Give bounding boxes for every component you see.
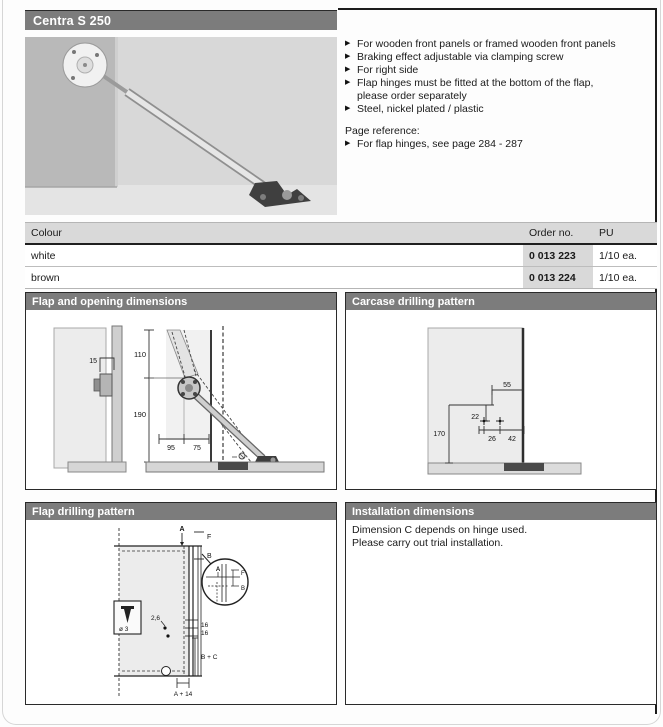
- dim-110: 110: [134, 350, 146, 359]
- dim-16-b: 16: [201, 630, 209, 637]
- product-title: Centra S 250: [25, 14, 111, 28]
- dim-22: 22: [471, 414, 479, 421]
- table-row: brown 0 013 224 1/10 ea.: [25, 267, 657, 288]
- bullet-icon: ▶: [345, 103, 357, 116]
- panel-carcase-drilling-pattern: Carcase drilling pattern 55 22: [345, 292, 657, 490]
- dim-75: 75: [193, 445, 201, 452]
- bullet-icon: ▶: [345, 77, 357, 102]
- feature-text: Steel, nickel plated / plastic: [357, 103, 484, 116]
- cell-order-no: 0 013 223: [523, 245, 593, 266]
- hinge-mechanism: [178, 377, 200, 399]
- dim-15: 15: [89, 358, 97, 365]
- cell-order-no: 0 013 224: [523, 267, 593, 288]
- label-B: B: [207, 553, 212, 560]
- feature-text: Flap hinges must be fitted at the bottom…: [357, 77, 593, 102]
- panel-header: Flap and opening dimensions: [26, 293, 336, 310]
- bullet-icon: ▶: [345, 138, 357, 151]
- page-top-border-line: [338, 8, 657, 10]
- cell-colour: brown: [25, 272, 523, 284]
- bullet-icon: ▶: [345, 51, 357, 64]
- panel-header: Flap drilling pattern: [26, 503, 336, 520]
- feature-item: ▶ Flap hinges must be fitted at the bott…: [345, 77, 653, 102]
- panel-header: Installation dimensions: [346, 503, 656, 520]
- installation-note: Dimension C depends on hinge used. Pleas…: [346, 520, 656, 553]
- bullet-icon: ▶: [345, 64, 357, 77]
- panel-title: Carcase drilling pattern: [346, 296, 475, 308]
- panel-title: Flap and opening dimensions: [26, 296, 187, 308]
- panel-header: Carcase drilling pattern: [346, 293, 656, 310]
- label-A: A: [179, 526, 184, 533]
- dim-a-plus-14: A + 14: [174, 691, 193, 698]
- dim-42: 42: [508, 436, 516, 443]
- installation-note-line: Dimension C depends on hinge used.: [352, 524, 650, 537]
- page-reference-text: For flap hinges, see page 284 - 287: [357, 138, 523, 151]
- col-header-colour: Colour: [25, 227, 523, 239]
- page-reference-item: ▶ For flap hinges, see page 284 - 287: [345, 138, 653, 151]
- flap-drilling-drawing: A F B A F B: [26, 520, 336, 704]
- label-F: F: [207, 534, 211, 541]
- page-reference-label: Page reference:: [345, 125, 653, 138]
- dim-170: 170: [433, 431, 445, 438]
- detail-label-F: F: [241, 571, 245, 577]
- feature-item: ▶ For wooden front panels or framed wood…: [345, 38, 653, 51]
- cell-colour: white: [25, 250, 523, 262]
- panel-flap-drilling-pattern: Flap drilling pattern A F B: [25, 502, 337, 705]
- product-photo: [25, 37, 337, 215]
- screw-icon: ø 3: [114, 601, 141, 634]
- dim-95: 95: [167, 445, 175, 452]
- panel-title: Flap drilling pattern: [26, 506, 135, 518]
- dim-26: 26: [488, 436, 496, 443]
- col-header-pu: PU: [593, 227, 657, 239]
- feature-item: ▶ Steel, nickel plated / plastic: [345, 103, 653, 116]
- carcase-drilling-drawing: 55 22 26: [346, 310, 656, 489]
- cell-pu: 1/10 ea.: [593, 250, 657, 262]
- dim-190: 190: [133, 410, 146, 419]
- dim-16-a: 16: [201, 622, 209, 629]
- table-header-row: Colour Order no. PU: [25, 223, 657, 245]
- clamping-screw-icon: [232, 453, 245, 459]
- panel-title: Installation dimensions: [346, 506, 474, 518]
- mounting-disc: [63, 43, 107, 87]
- order-table: Colour Order no. PU white 0 013 223 1/10…: [25, 222, 657, 289]
- panel-installation-dimensions: Installation dimensions Dimension C depe…: [345, 502, 657, 705]
- catalog-page: Centra S 250: [0, 0, 663, 727]
- bullet-icon: ▶: [345, 38, 357, 51]
- installation-note-line: Please carry out trial installation.: [352, 537, 650, 550]
- flap-stay-photo: [25, 37, 337, 215]
- feature-text: For wooden front panels or framed wooden…: [357, 38, 616, 51]
- feature-text: For right side: [357, 64, 418, 77]
- feature-item: ▶ Braking effect adjustable via clamping…: [345, 51, 653, 64]
- detail-label-B: B: [241, 586, 245, 592]
- detail-magnifier: A F B: [202, 559, 248, 605]
- product-title-bar: Centra S 250: [25, 10, 337, 30]
- page-reference: Page reference: ▶ For flap hinges, see p…: [345, 125, 653, 151]
- flap-opening-drawing: 15 110 190: [26, 310, 336, 489]
- dim-pilot: 2,6: [151, 615, 160, 622]
- screw-diameter-label: ø 3: [119, 626, 129, 633]
- dim-b-plus-c: B + C: [201, 654, 218, 661]
- col-header-order-no: Order no.: [523, 223, 593, 243]
- cell-pu: 1/10 ea.: [593, 272, 657, 284]
- panel-flap-opening-dimensions: Flap and opening dimensions 15 110 190: [25, 292, 337, 490]
- feature-item: ▶ For right side: [345, 64, 653, 77]
- feature-list: ▶ For wooden front panels or framed wood…: [345, 38, 653, 151]
- feature-text: Braking effect adjustable via clamping s…: [357, 51, 563, 64]
- dim-55: 55: [503, 382, 511, 389]
- table-row: white 0 013 223 1/10 ea.: [25, 245, 657, 267]
